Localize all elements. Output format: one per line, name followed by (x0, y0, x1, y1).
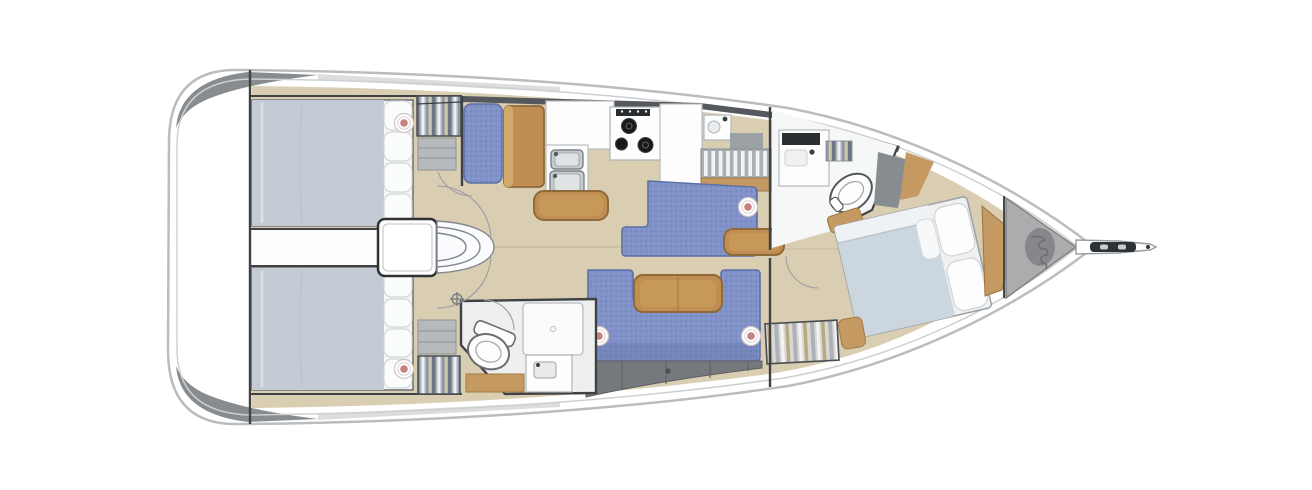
burner (622, 119, 637, 134)
companionway-landing (378, 219, 437, 276)
nav-seat (464, 104, 502, 183)
head-wood-grating (466, 374, 524, 392)
faucet (723, 117, 728, 122)
dish-rack (701, 149, 771, 178)
faucet (536, 363, 540, 367)
pillow (384, 329, 412, 357)
engine-compartment (250, 229, 378, 266)
pillow (384, 132, 412, 161)
wood-seat (838, 316, 867, 350)
accent-pillow (395, 360, 414, 379)
faucet (809, 149, 814, 154)
faucet (554, 152, 558, 156)
mini-basin (704, 115, 731, 140)
head-shelf-stripes (826, 141, 852, 161)
pillow (384, 163, 412, 192)
faucet (553, 174, 557, 178)
burner (616, 138, 628, 150)
washbasin-cabinet (526, 355, 572, 392)
shelf-unit (418, 320, 456, 354)
locker-latch (665, 368, 670, 373)
boat-floorplan (0, 0, 1312, 490)
nav-station (464, 104, 544, 187)
pillow (384, 299, 412, 327)
galley-counter-right (660, 104, 702, 190)
hanging-locker (418, 356, 460, 394)
counter-gray-patch (730, 133, 763, 151)
burner (638, 138, 653, 153)
port-aft-berth-duvet (252, 100, 384, 226)
accent-pillow (739, 198, 758, 217)
vanity-counter-dark (782, 133, 820, 145)
starboard-aft-berth-duvet (252, 268, 384, 390)
double-sink (550, 150, 584, 194)
shelf-unit (418, 138, 456, 170)
accent-pillow (742, 327, 761, 346)
anchor-roller (1090, 242, 1136, 252)
vanity (779, 130, 829, 186)
aft-head (461, 299, 596, 394)
accent-pillow (395, 114, 414, 133)
bowsprit (1076, 240, 1156, 254)
stove (610, 107, 662, 160)
stove-knob-strip (616, 109, 650, 116)
galley-counter-left (546, 101, 614, 149)
shower-pan (523, 303, 583, 355)
settee-backrest-shade (590, 343, 758, 360)
locker-bench-striped (765, 320, 839, 364)
chart-table-edge (504, 106, 513, 187)
